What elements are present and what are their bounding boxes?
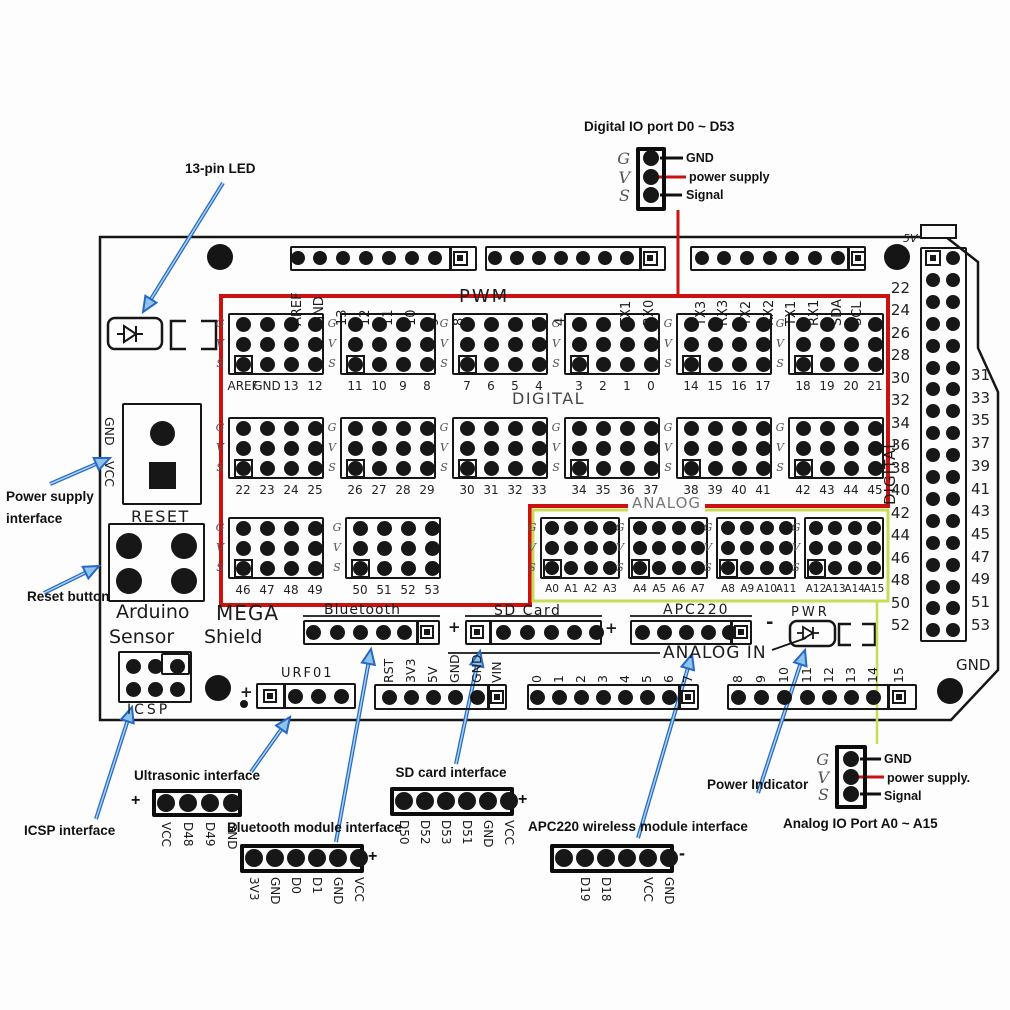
- power-header-pin: [470, 690, 485, 705]
- pin-block-pin: [396, 421, 411, 436]
- apc220-connector-pin: [555, 849, 573, 867]
- pin-block-row-letter: V: [527, 541, 537, 554]
- sdcard-connector-pin-label: GND: [479, 820, 497, 875]
- sdcard-connector-pin: [458, 792, 476, 810]
- sdcard-connector-pin-label: D52: [416, 820, 434, 875]
- pin-block-row-letter: S: [615, 561, 625, 574]
- pin-block-pin: [633, 521, 647, 535]
- pin-block-pin: [372, 441, 387, 456]
- digital-side-pin: [946, 361, 960, 375]
- pin-block-pin: [732, 461, 747, 476]
- pin-block-row-letter: S: [791, 561, 801, 574]
- pin-block-row-letter: G: [439, 421, 449, 434]
- gnd-corner-label: GND: [956, 656, 990, 674]
- mounting-hole: [937, 678, 963, 704]
- mounting-hole: [207, 244, 233, 270]
- pin-block-pin: [260, 421, 275, 436]
- pin-block-row-letter: V: [332, 541, 342, 554]
- analog-in-header-1-label: 3: [594, 643, 612, 683]
- digital-side-pin: [946, 295, 960, 309]
- digital-side-pin: [926, 492, 940, 506]
- pin-block-pin: [284, 337, 299, 352]
- pin-block-pin: [236, 521, 251, 536]
- digital-pin-number-left: 26: [882, 324, 910, 342]
- analog-in-header-2-label: 10: [775, 643, 793, 683]
- apc220-header-pin: [679, 625, 694, 640]
- apc220-minus-sign: -: [766, 612, 773, 633]
- pin-block-pin: [796, 317, 811, 332]
- sdcard-silk-label: SD Card: [494, 603, 561, 619]
- pin-number: A3: [593, 583, 627, 595]
- bluetooth-header-pin: [306, 625, 321, 640]
- pin-block-pin: [708, 337, 723, 352]
- digital-side-pin: [946, 558, 960, 572]
- pin-block-pin: [372, 461, 387, 476]
- digital-pin-number-left: 46: [882, 549, 910, 567]
- digital-side-pin: [926, 514, 940, 528]
- legend-bottom-gnd: GND: [884, 752, 912, 766]
- mounting-hole: [884, 244, 910, 270]
- ultrasonic-plus-sign: +: [131, 792, 140, 810]
- bluetooth-header-pin: [353, 625, 368, 640]
- top-header-pin: [763, 251, 777, 265]
- icsp-pin: [148, 682, 163, 697]
- pin-block-pin: [584, 521, 598, 535]
- sdcard-plus-sign: +: [605, 619, 618, 637]
- pin-block-pin: [484, 337, 499, 352]
- pin-block-pin: [572, 337, 587, 352]
- digital-side-pin: [926, 448, 940, 462]
- urf01-header-pin: [311, 689, 326, 704]
- apc220-connector-pin-label: [618, 877, 636, 932]
- power-header-label: GND: [468, 640, 486, 683]
- top-header-divider: [847, 246, 850, 271]
- pin-block-pin: [484, 317, 499, 332]
- digital-pin-number-left: 40: [882, 481, 910, 499]
- pin-block-row-letter: G: [215, 421, 225, 434]
- pin-number: 12: [298, 379, 332, 393]
- ultrasonic-connector-pin-label: GND: [223, 822, 241, 877]
- pin-block-pin: [425, 541, 440, 556]
- digital-side-pin: [946, 273, 960, 287]
- pin-block-row-letter: S: [527, 561, 537, 574]
- pin-block-row-letter: G: [703, 521, 713, 534]
- pin-block-pin: [545, 561, 559, 575]
- digital-side-pin: [926, 361, 940, 375]
- pin-block-pin: [760, 561, 774, 575]
- pin-block-pin: [844, 337, 859, 352]
- pin-block-pin: [508, 461, 523, 476]
- pin-block-pin: [508, 441, 523, 456]
- apc220-connector-pin-label: VCC: [639, 877, 657, 932]
- digital-side-pin: [946, 492, 960, 506]
- pin-block-pin: [684, 461, 699, 476]
- apc220-connector-pin-label: [555, 877, 573, 932]
- icsp-pin: [148, 659, 163, 674]
- legend-top-pin: [643, 187, 659, 203]
- pin-block-row-letter: S: [215, 357, 225, 370]
- analog-in-header-1-label: 1: [550, 643, 568, 683]
- analog-in-header-2-pin: [777, 690, 792, 705]
- digital-pin-number-left: 24: [882, 301, 910, 319]
- pin-block-pin: [644, 317, 659, 332]
- top-header-pin: [405, 251, 419, 265]
- pin-block-pin: [572, 317, 587, 332]
- pin-block-pin: [848, 521, 862, 535]
- pin-block-pin: [236, 421, 251, 436]
- pin-block-pin: [868, 317, 883, 332]
- pin-block-pin: [732, 441, 747, 456]
- reset-button-pin: [116, 568, 142, 594]
- pin-block-pin: [377, 521, 392, 536]
- sdcard-header-pin: [567, 625, 582, 640]
- pin-block-pin: [756, 357, 771, 372]
- power-jack-outline: [122, 403, 202, 505]
- legend-top-s: S: [610, 186, 630, 205]
- pin-block-row-letter: S: [663, 357, 673, 370]
- legend-top-pin: [643, 150, 659, 166]
- pin-block-pin: [377, 541, 392, 556]
- digital-io-callout-title: Digital IO port D0 ~ D53: [584, 119, 734, 134]
- pin-block-pin: [820, 317, 835, 332]
- pin-number: 0: [634, 379, 668, 393]
- pin-block-pin: [756, 317, 771, 332]
- top-header-pin: [717, 251, 731, 265]
- pin-block-pin: [308, 441, 323, 456]
- arduino-mega-sensor-shield-diagram: Digital IO port D0 ~ D53 Analog IO Port …: [0, 0, 1010, 1010]
- top-header-pin: [313, 251, 327, 265]
- analog-in-header-2-pin: [844, 690, 859, 705]
- sdcard-connector-pin: [479, 792, 497, 810]
- sensor-silk-label: Sensor: [109, 626, 174, 648]
- pin-block-pin: [396, 317, 411, 332]
- mounting-hole: [205, 675, 231, 701]
- reset-button-pin: [171, 568, 197, 594]
- pin-block-row-letter: S: [327, 461, 337, 474]
- analog-in-header-2-divider: [887, 684, 890, 710]
- pin-block-pin: [867, 541, 881, 555]
- top-header-square-pin: [851, 251, 866, 266]
- mega-silk-label: MEGA: [216, 601, 279, 625]
- pin-block-pin: [260, 357, 275, 372]
- pin-block-row-letter: S: [703, 561, 713, 574]
- pin-block-pin: [508, 337, 523, 352]
- power-indicator-callout: Power Indicator: [707, 777, 808, 792]
- pin-block-pin: [284, 441, 299, 456]
- pin-block-pin: [684, 337, 699, 352]
- power-header-label: GND: [446, 640, 464, 683]
- pin-block-pin: [236, 541, 251, 556]
- apc220-header-pin: [701, 625, 716, 640]
- pin-block-pin: [348, 421, 363, 436]
- icsp-pin: [126, 659, 141, 674]
- digital-side-pin: [946, 251, 960, 265]
- pin-block-pin: [644, 337, 659, 352]
- digital-side-pin: [926, 273, 940, 287]
- pin-block-pin: [508, 357, 523, 372]
- top-header-square-pin: [453, 251, 468, 266]
- top-header-pin: [695, 251, 709, 265]
- top-header-pin: [740, 251, 754, 265]
- icsp-callout: ICSP interface: [24, 823, 115, 838]
- pin-block-pin: [260, 461, 275, 476]
- pin-block-pin: [372, 421, 387, 436]
- pin-number: 25: [298, 483, 332, 497]
- pin-block-pin: [732, 357, 747, 372]
- pin-block-pin: [844, 421, 859, 436]
- digital-pin-number-right: 45: [971, 525, 1001, 543]
- analog-in-header-2-label: 14: [864, 643, 882, 683]
- pin-block-row-letter: V: [615, 541, 625, 554]
- pin-block-pin: [820, 357, 835, 372]
- digital-pin-number-right: 49: [971, 570, 1001, 588]
- digital-side-pin: [926, 580, 940, 594]
- digital-side-pin: [926, 470, 940, 484]
- pin-block-pin: [868, 441, 883, 456]
- analog-in-header-1-label: 6: [660, 643, 678, 683]
- pin-block-pin: [672, 521, 686, 535]
- sdcard-header-pin: [520, 625, 535, 640]
- power-header-pin: [426, 690, 441, 705]
- pin-block-pin: [460, 317, 475, 332]
- pin-block-pin: [708, 317, 723, 332]
- pin-block-pin: [425, 521, 440, 536]
- pin-block-row-letter: V: [703, 541, 713, 554]
- power-header-pin: [382, 690, 397, 705]
- ultrasonic-connector-pin: [179, 794, 197, 812]
- top-header-pin: [488, 251, 502, 265]
- pin-block-pin: [425, 561, 440, 576]
- pin-block-row-letter: V: [551, 441, 561, 454]
- pin-block-pin: [260, 441, 275, 456]
- pin-block-pin: [756, 421, 771, 436]
- sdcard-connector-pin: [395, 792, 413, 810]
- pin-block-pin: [572, 461, 587, 476]
- pin-number: 29: [410, 483, 444, 497]
- urf01-header-divider: [283, 683, 286, 709]
- pin-block-pin: [532, 461, 547, 476]
- bluetooth-header-pin: [330, 625, 345, 640]
- analog-in-header-1-pin: [530, 690, 545, 705]
- pin-block-pin: [644, 357, 659, 372]
- arduino-silk-label: Arduino: [116, 601, 190, 623]
- pin-block-pin: [820, 461, 835, 476]
- ultrasonic-connector-pin: [201, 794, 219, 812]
- icsp-silk-label: ICSP: [127, 702, 170, 718]
- analog-in-header-1-square-pin: [681, 690, 695, 704]
- power-supply-callout-line1: Power supply: [6, 489, 94, 504]
- pin-block-pin: [460, 461, 475, 476]
- analog-in-header-2-pin: [866, 690, 881, 705]
- pin-block-pin: [236, 357, 251, 372]
- power-header-pin: [448, 690, 463, 705]
- digital-side-pin: [946, 470, 960, 484]
- bluetooth-connector-plus-sign: +: [368, 848, 377, 866]
- pin-block-row-letter: G: [551, 421, 561, 434]
- top-header-pin: [576, 251, 590, 265]
- icsp-pin: [170, 659, 185, 674]
- bluetooth-connector-pin-label: D0: [287, 877, 305, 932]
- pin-block-pin: [545, 541, 559, 555]
- apc220-connector-minus-sign: -: [679, 843, 685, 864]
- legend-top-power: power supply: [689, 170, 770, 184]
- digital-side-pin: [926, 536, 940, 550]
- pin-block-pin: [796, 441, 811, 456]
- pin-block-row-letter: V: [775, 337, 785, 350]
- analog-in-header-2-label: 13: [842, 643, 860, 683]
- pin-block-row-letter: G: [527, 521, 537, 534]
- pin-block-row-letter: S: [439, 461, 449, 474]
- pin-block-pin: [708, 441, 723, 456]
- reset-button-pin: [116, 533, 142, 559]
- digital-pin-number-left: 42: [882, 504, 910, 522]
- pin-block-pin: [308, 337, 323, 352]
- silk-dot: [240, 700, 248, 708]
- analog-in-header-2-label: 9: [752, 643, 770, 683]
- apc220-header-square-pin: [734, 625, 748, 639]
- pin-block-row-letter: V: [791, 541, 801, 554]
- legend-bottom-pin: [843, 751, 859, 767]
- pin-block-pin: [644, 441, 659, 456]
- top-header-pin: [336, 251, 350, 265]
- pin-block-row-letter: G: [775, 421, 785, 434]
- pin-number: A11: [769, 583, 803, 595]
- pin-block-pin: [236, 441, 251, 456]
- pin-block-pin: [308, 357, 323, 372]
- pin-block-pin: [460, 357, 475, 372]
- pin-block-pin: [484, 421, 499, 436]
- pin-block-pin: [377, 561, 392, 576]
- pin-block-row-letter: G: [439, 317, 449, 330]
- pin-block-row-letter: S: [551, 357, 561, 370]
- pin-block-pin: [420, 317, 435, 332]
- pin-block-pin: [809, 521, 823, 535]
- top-header-pin: [532, 251, 546, 265]
- pin-block-pin: [620, 337, 635, 352]
- pin-block-pin: [308, 541, 323, 556]
- pin-block-row-letter: S: [327, 357, 337, 370]
- pin-block-pin: [260, 337, 275, 352]
- pin-block-pin: [401, 521, 416, 536]
- top-header-pin: [291, 251, 305, 265]
- arrow-icsp: [96, 707, 134, 819]
- analog-in-header-1-label: 2: [572, 643, 590, 683]
- pin-block-pin: [460, 421, 475, 436]
- bluetooth-connector-title: Bluetooth module interface: [227, 820, 389, 835]
- pin-block-pin: [844, 441, 859, 456]
- digital-side-pin: [926, 317, 940, 331]
- analog-in-header-1-pin: [596, 690, 611, 705]
- pin-block-row-letter: S: [439, 357, 449, 370]
- bluetooth-connector-pin-label: GND: [266, 877, 284, 932]
- ultrasonic-connector-pin-label: D49: [201, 822, 219, 877]
- bluetooth-header-pin: [397, 625, 412, 640]
- pin-block-pin: [584, 561, 598, 575]
- pin-number: 37: [634, 483, 668, 497]
- pin-block-pin: [596, 337, 611, 352]
- reset-button-callout: Reset button: [27, 589, 110, 604]
- pin-block-pin: [633, 561, 647, 575]
- digital-pin-number-right: 33: [971, 389, 1001, 407]
- pin-block-pin: [732, 421, 747, 436]
- pin-block-pin: [420, 357, 435, 372]
- analog-in-header-1-pin: [552, 690, 567, 705]
- icsp-pin: [170, 682, 185, 697]
- digital-pin-number-right: 41: [971, 480, 1001, 498]
- pin-block-pin: [644, 421, 659, 436]
- apc220-connector-pin: [660, 849, 678, 867]
- pin-block-row-letter: V: [439, 441, 449, 454]
- pin-block-row-letter: S: [663, 461, 673, 474]
- pin-block-pin: [633, 541, 647, 555]
- digital-pin-number-right: 47: [971, 548, 1001, 566]
- bluetooth-silk-label: Bluetooth: [324, 602, 401, 618]
- analog-in-header-2-square-pin: [892, 690, 906, 704]
- digital-side-pin: [926, 295, 940, 309]
- sdcard-header-pin: [589, 625, 604, 640]
- power-header-label: VIN: [488, 640, 506, 683]
- digital-pin-number-left: 22: [882, 279, 910, 297]
- digital-pin-number-left: 28: [882, 346, 910, 364]
- pwr-silk-label: PWR: [791, 605, 830, 620]
- pin-number: 53: [415, 583, 449, 597]
- pin-block-pin: [684, 357, 699, 372]
- analog-in-header-2-label: 15: [890, 643, 908, 683]
- legend-bottom-signal: Signal: [884, 789, 922, 803]
- pin-block-pin: [308, 317, 323, 332]
- bluetooth-header-square-pin: [420, 625, 434, 639]
- pin-block-pin: [396, 357, 411, 372]
- pin-block-row-letter: G: [215, 521, 225, 534]
- apc220-connector-pin: [618, 849, 636, 867]
- pin-block-pin: [260, 541, 275, 556]
- apc220-connector-pin: [597, 849, 615, 867]
- pin-block-row-letter: G: [327, 421, 337, 434]
- pin-block-pin: [260, 561, 275, 576]
- pin-block-pin: [809, 541, 823, 555]
- analog-in-header-2-pin: [731, 690, 746, 705]
- pin-block-pin: [620, 441, 635, 456]
- pin-block-pin: [684, 317, 699, 332]
- digital-pin-number-right: 37: [971, 434, 1001, 452]
- legend-top-g: G: [610, 149, 630, 168]
- bluetooth-connector-pin: [266, 849, 284, 867]
- pin-block-pin: [236, 461, 251, 476]
- top-header-pin: [598, 251, 612, 265]
- pin-block-pin: [532, 357, 547, 372]
- analog-in-header-1-label: 5: [638, 643, 656, 683]
- digital-pin-number-right: 39: [971, 457, 1001, 475]
- pin-block-pin: [596, 421, 611, 436]
- pin-block-row-letter: V: [663, 337, 673, 350]
- pin-block-pin: [420, 421, 435, 436]
- sdcard-header-pin: [544, 625, 559, 640]
- pin-block-pin: [484, 357, 499, 372]
- digital-side-pin: [926, 339, 940, 353]
- ultrasonic-connector-pin: [157, 794, 175, 812]
- apc220-connector-pin-label: GND: [660, 877, 678, 932]
- pin-block-pin: [708, 421, 723, 436]
- legend-top-gnd: GND: [686, 151, 714, 165]
- digital-pin-number-left: 32: [882, 391, 910, 409]
- led-callout: 13-pin LED: [185, 161, 256, 176]
- pin-block-pin: [732, 337, 747, 352]
- digital-side-pin: [946, 448, 960, 462]
- sdcard-connector-pin-label: D51: [458, 820, 476, 875]
- pin-block-pin: [620, 317, 635, 332]
- pin-block-pin: [420, 441, 435, 456]
- pin-block-pin: [572, 421, 587, 436]
